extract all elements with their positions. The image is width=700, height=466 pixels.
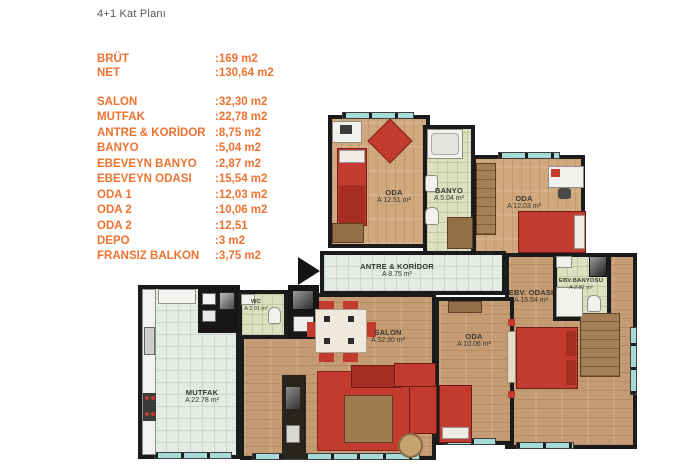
room-label-banyo: BANYO A 5.04 m² — [434, 186, 464, 204]
window — [154, 452, 232, 459]
stove-burner — [151, 396, 155, 400]
kitchen-counter — [142, 289, 156, 455]
dresser — [332, 223, 364, 243]
room-label-ebv-odasi: EBV. ODASI A 15.54 m² — [509, 288, 554, 306]
placemat — [348, 316, 354, 322]
desk-item — [551, 169, 560, 177]
floor-plan: ODA A 12.51 m² BANYO A 5.04 m² ODA A 12.… — [110, 35, 670, 466]
oven-icon — [202, 310, 216, 322]
side-table — [398, 433, 423, 458]
oven-icon — [202, 293, 216, 305]
french-balcony-window — [252, 453, 420, 460]
room-label-salon: SALON A 32.30 m² — [371, 328, 405, 346]
wardrobe — [580, 313, 620, 377]
placemat — [324, 316, 330, 322]
room-label-ebv-banyo: EBV.BANYOSU A 2.87 m² — [559, 278, 603, 292]
toilet — [587, 295, 601, 312]
stove-burner — [151, 412, 155, 416]
laptop-icon — [340, 125, 352, 134]
bed-blanket — [339, 185, 365, 224]
page-title: 4+1 Kat Planı — [97, 8, 166, 20]
room-label-antre: ANTRE & KORİDOR A 8.75 m² — [360, 262, 434, 280]
dresser — [448, 301, 482, 313]
entrance-arrow-icon — [298, 257, 320, 285]
coffee-table — [344, 395, 393, 443]
toilet — [268, 307, 281, 324]
window — [342, 112, 414, 119]
wardrobe — [476, 163, 496, 235]
kitchen-cabinet — [158, 289, 196, 304]
window — [498, 152, 560, 159]
sofa — [409, 386, 437, 434]
tv-icon — [286, 425, 300, 443]
toilet — [425, 207, 439, 225]
placemat — [348, 338, 354, 344]
dining-table — [315, 309, 367, 353]
bathtub-basin — [431, 133, 459, 155]
stove-burner — [145, 412, 149, 416]
storage-shelf — [292, 290, 314, 310]
window — [630, 327, 637, 395]
bed-pillow — [574, 215, 585, 249]
room-label-oda-1006: ODA A 10.06 m² — [457, 332, 491, 350]
sofa — [394, 363, 436, 387]
room-label-wc: WC A 2.01 m² — [244, 299, 268, 313]
desk-chair — [558, 188, 571, 199]
stove-burner — [145, 396, 149, 400]
bed-pillow — [566, 331, 576, 356]
bed-bench — [507, 331, 516, 383]
bed-pillow — [442, 427, 469, 439]
placemat — [324, 338, 330, 344]
bed-pillow — [566, 360, 576, 385]
bath-cabinet — [447, 217, 473, 249]
tv-icon — [286, 387, 300, 409]
fridge-icon — [219, 292, 235, 310]
sink — [556, 256, 572, 268]
room-label-mutfak: MUTFAK A 22.78 m² — [185, 388, 219, 406]
shower — [589, 256, 607, 277]
bed-pillow — [339, 150, 365, 163]
kitchen-sink — [144, 327, 155, 355]
room-label-oda-1251: ODA A 12.51 m² — [377, 188, 411, 206]
bedside-lamp — [508, 391, 515, 398]
room-label-oda-1203: ODA A 12.03 m² — [507, 194, 541, 212]
window — [516, 442, 574, 449]
bedside-lamp — [508, 319, 515, 326]
